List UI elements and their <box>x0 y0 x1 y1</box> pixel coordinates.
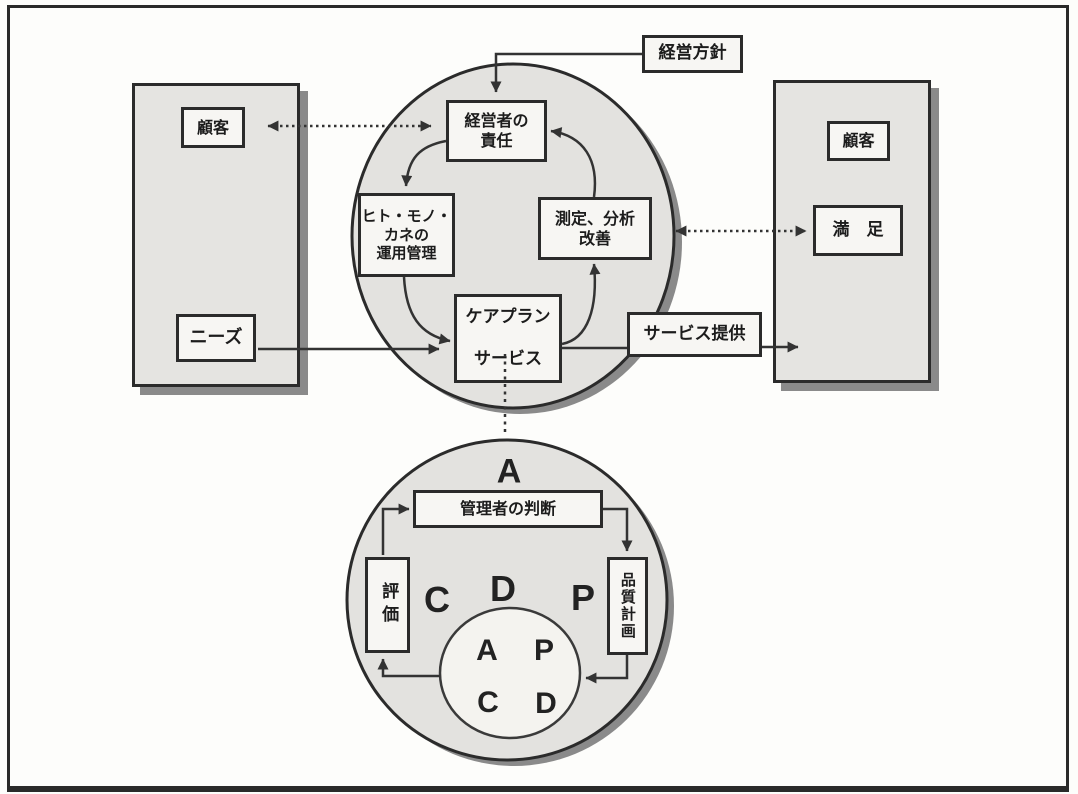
needs-label: ニーズ <box>189 327 242 350</box>
customer-left-label: 顧客 <box>197 118 229 138</box>
letter-inner-c: C <box>477 686 499 720</box>
quality-plan-box: 品質計画 <box>607 557 648 655</box>
careplan-box: ケアプラン サービス <box>454 294 562 383</box>
policy-label: 経営方針 <box>659 43 727 64</box>
service-delivery-box: サービス提供 <box>627 312 762 357</box>
manager-judgment-label: 管理者の判断 <box>460 499 556 519</box>
measurement-box: 測定、分析 改善 <box>538 197 652 260</box>
resources-box: ヒト・モノ・ カネの 運用管理 <box>358 193 455 277</box>
satisfaction-label: 満 足 <box>833 220 884 241</box>
policy-box: 経営方針 <box>642 35 743 73</box>
letter-inner-p: P <box>534 634 554 668</box>
quality-plan-label: 品質計画 <box>618 572 637 640</box>
measurement-line1: 測定、分析 <box>555 209 635 229</box>
service-delivery-label: サービス提供 <box>644 324 746 345</box>
resources-line1: ヒト・モノ・ <box>361 207 451 226</box>
evaluation-box: 評価 <box>365 557 410 653</box>
management-responsibility-line1: 経営者の <box>464 111 528 131</box>
customer-right-box: 顧客 <box>827 121 890 161</box>
needs-box: ニーズ <box>176 314 256 362</box>
inner-pdca-circle <box>440 608 580 738</box>
management-responsibility-line2: 責任 <box>480 131 512 151</box>
letter-inner-a: A <box>476 634 498 668</box>
resources-line3: 運用管理 <box>376 244 436 263</box>
management-responsibility-box: 経営者の 責任 <box>446 100 547 162</box>
manager-judgment-box: 管理者の判断 <box>413 490 603 528</box>
satisfaction-box: 満 足 <box>813 205 903 256</box>
diagram-canvas: 経営方針 顧客 ニーズ 顧客 満 足 サービス提供 経営者の 責任 ヒト・モノ・… <box>0 0 1078 794</box>
customer-right-label: 顧客 <box>842 131 874 151</box>
customer-left-box: 顧客 <box>181 107 245 148</box>
letter-do: D <box>490 568 516 610</box>
measurement-line2: 改善 <box>579 229 611 249</box>
careplan-line2: サービス <box>474 349 542 370</box>
letter-plan: P <box>571 577 595 619</box>
evaluation-label: 評価 <box>377 582 398 628</box>
letter-inner-d: D <box>535 687 557 721</box>
careplan-line1: ケアプラン <box>466 307 551 328</box>
resources-line2: カネの <box>384 226 429 245</box>
letter-act-top: A <box>497 453 522 492</box>
letter-check: C <box>424 579 450 621</box>
